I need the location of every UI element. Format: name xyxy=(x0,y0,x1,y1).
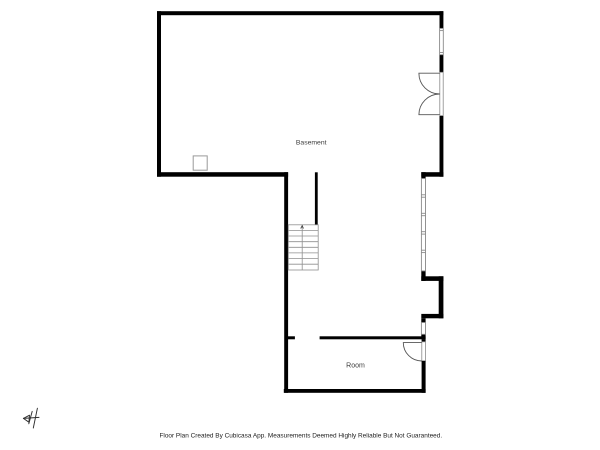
svg-text:Floor Plan Created By Cubicasa: Floor Plan Created By Cubicasa App. Meas… xyxy=(159,432,442,439)
svg-text:Basement: Basement xyxy=(296,139,327,146)
svg-text:Room: Room xyxy=(346,362,365,369)
